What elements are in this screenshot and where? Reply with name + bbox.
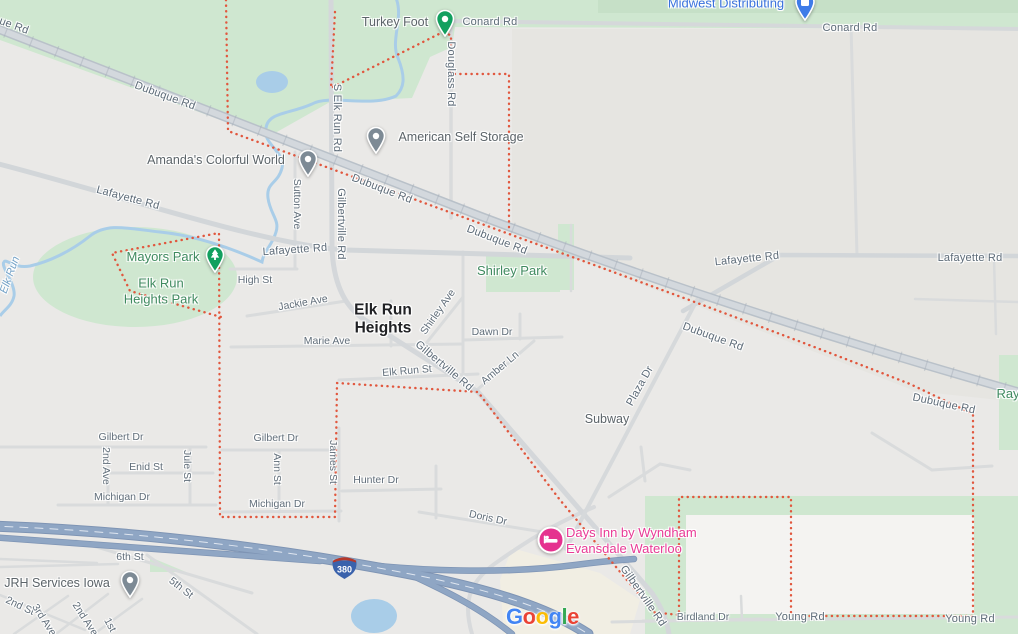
mayors-park-tree-pin[interactable] (204, 245, 226, 278)
street-label-michigan-dr-1: Michigan Dr (94, 491, 150, 503)
city-label-elk-run-heights[interactable]: Elk RunHeights (354, 302, 412, 339)
street-label-sutton-ave: Sutton Ave (291, 179, 303, 230)
park-label-shirley-park[interactable]: Shirley Park (477, 263, 547, 279)
google-logo-letter-1: G (506, 604, 523, 629)
street-label-ann-st: Ann St (271, 453, 283, 485)
street-label-enid-st: Enid St (129, 461, 163, 473)
street-label-james-st: James St (327, 440, 339, 484)
green-right-sliver (999, 355, 1018, 450)
road-label-conard-1: Conard Rd (463, 16, 518, 28)
street-label-marie-ave: Marie Ave (304, 335, 351, 347)
poi-label-amandas-colorful-world[interactable]: Amanda's Colorful World (147, 153, 285, 167)
map-canvas[interactable]: ue RdDubuque RdDubuque RdDubuque RdDubuq… (0, 0, 1018, 634)
shield-route-number: 380 (337, 565, 352, 575)
poi-label-turkey-foot[interactable]: Turkey Foot (362, 15, 428, 29)
hotel-label-days-inn-line-1[interactable]: Days Inn by Wyndham (566, 525, 697, 541)
american-self-storage-pin[interactable] (365, 126, 387, 159)
amandas-colorful-world-pin[interactable] (297, 149, 319, 182)
days-inn-pin[interactable] (537, 526, 565, 559)
green-cutout (686, 515, 974, 614)
google-logo-letter-4: g (549, 604, 562, 629)
hotel-label-days-inn-line-2[interactable]: Evansdale Waterloo (566, 541, 697, 557)
turkey-foot-pin[interactable] (434, 9, 456, 42)
road-label-douglass-rd: Douglass Rd (445, 41, 457, 106)
street-label-gilbert-dr-1: Gilbert Dr (99, 431, 144, 443)
jrh-services-pin[interactable] (119, 570, 141, 603)
street-label-high-st: High St (238, 274, 272, 286)
road-label-s-elk-run-rd: S Elk Run Rd (331, 84, 343, 152)
street-label-6th-st: 6th St (116, 551, 143, 563)
park-label-elk-run-heights-park-line-2[interactable]: Heights Park (124, 291, 198, 307)
street-label-birdland-dr: Birdland Dr (677, 611, 730, 623)
city-label-elk-run-heights-line-1[interactable]: Elk Run (354, 302, 412, 320)
street-label-gilbert-dr-2: Gilbert Dr (254, 432, 299, 444)
outside-area (512, 29, 1018, 402)
park-label-elk-run-heights-park-line-1[interactable]: Elk Run (124, 275, 198, 291)
street-label-jule-st: Jule St (181, 450, 193, 482)
road-label-lafayette-4: Lafayette Rd (938, 252, 1003, 264)
street-label-2nd-ave: 2nd Ave (100, 447, 112, 485)
road-label-gilbertville-n: Gilbertville Rd (335, 188, 347, 259)
google-logo-letter-3: o (536, 604, 549, 629)
google-logo-letter-6: e (567, 604, 579, 629)
road-label-young-rd-1: Young Rd (775, 611, 825, 623)
hotel-label-days-inn[interactable]: Days Inn by WyndhamEvansdale Waterloo (566, 525, 697, 558)
park-label-mayors-park[interactable]: Mayors Park (127, 249, 200, 265)
park-label-ray[interactable]: Ray (996, 386, 1018, 402)
biz-label-midwest-distributing[interactable]: Midwest Distributing (668, 0, 784, 11)
road-label-young-rd-2: Young Rd (945, 613, 995, 625)
road-label-conard-2: Conard Rd (823, 22, 878, 34)
park-label-elk-run-heights-park[interactable]: Elk RunHeights Park (124, 275, 198, 306)
google-logo-letter-2: o (523, 604, 536, 629)
city-label-elk-run-heights-line-2[interactable]: Heights (354, 320, 412, 338)
street-label-hunter-dr: Hunter Dr (353, 474, 399, 486)
poi-label-subway[interactable]: Subway (585, 412, 629, 426)
midwest-distributing-pin[interactable] (793, 0, 817, 26)
google-logo: Google (506, 604, 579, 630)
interstate-380-shield: 380 (331, 556, 358, 585)
street-label-dawn-dr: Dawn Dr (472, 326, 513, 338)
street-label-michigan-dr-2: Michigan Dr (249, 498, 305, 510)
poi-label-jrh-services-iowa[interactable]: JRH Services Iowa (4, 576, 110, 590)
poi-label-american-self-storage[interactable]: American Self Storage (398, 130, 523, 144)
